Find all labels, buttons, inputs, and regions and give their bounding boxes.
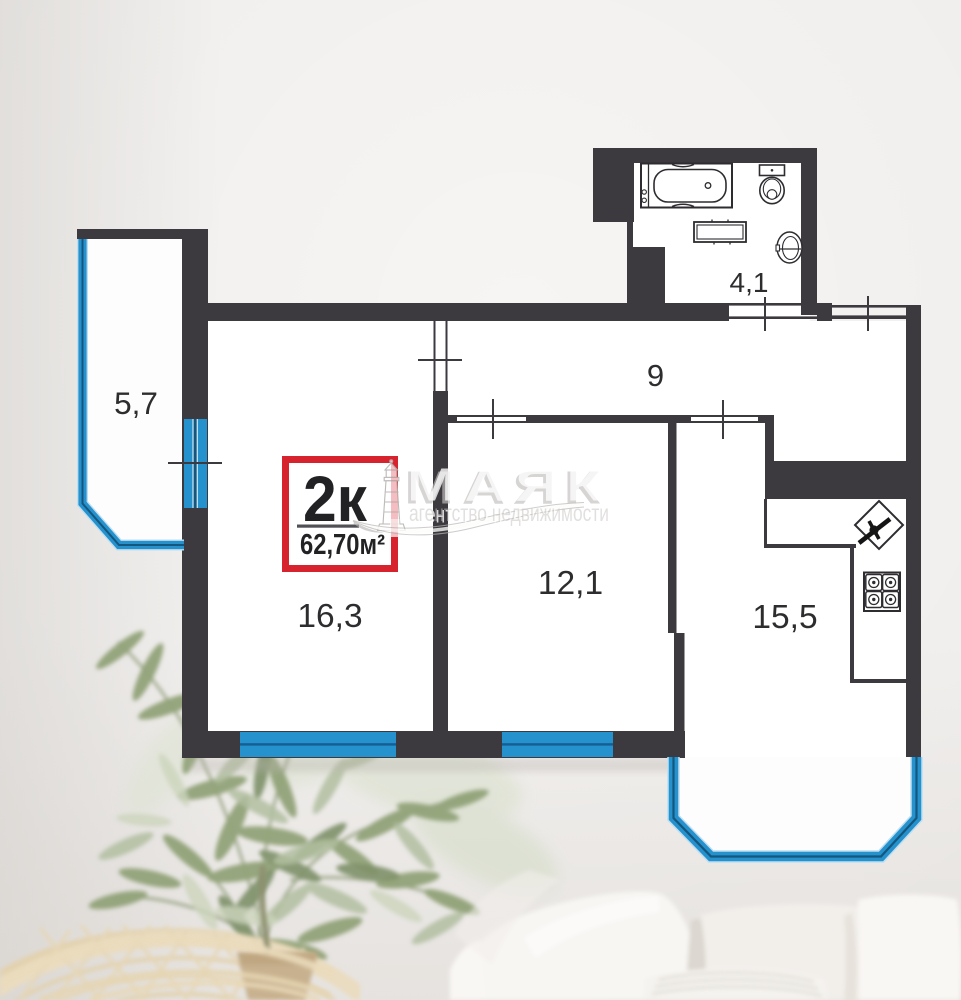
svg-text:12,1: 12,1: [538, 565, 603, 602]
svg-text:4,1: 4,1: [730, 267, 769, 298]
svg-text:62,70м²: 62,70м²: [300, 529, 385, 561]
svg-text:15,5: 15,5: [752, 599, 817, 636]
svg-text:16,3: 16,3: [297, 598, 362, 635]
svg-text:9: 9: [647, 358, 664, 393]
svg-text:5,7: 5,7: [114, 385, 158, 421]
svg-text:агентство недвижимости: агентство недвижимости: [409, 500, 609, 526]
